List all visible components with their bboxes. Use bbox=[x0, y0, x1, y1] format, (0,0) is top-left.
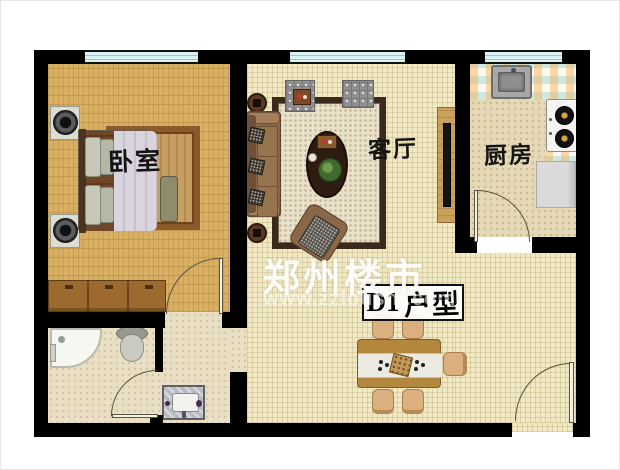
vanity-basin bbox=[172, 393, 199, 412]
bedroom-door-leaf bbox=[219, 258, 223, 314]
coffee-table-tray bbox=[317, 135, 337, 149]
wall-right bbox=[576, 50, 590, 437]
dining-chair bbox=[443, 352, 467, 376]
sofa-pillow bbox=[248, 189, 266, 207]
wall-bedroom-living bbox=[230, 50, 247, 328]
wall-hall-dining bbox=[230, 372, 247, 423]
coffee-table-dish bbox=[308, 153, 317, 162]
wardrobe bbox=[48, 280, 166, 312]
wall-bottom bbox=[573, 423, 590, 437]
entry-door-leaf bbox=[569, 362, 574, 423]
faucet-icon bbox=[511, 68, 516, 73]
wall-left bbox=[34, 50, 48, 437]
bathroom-vanity bbox=[162, 385, 205, 420]
wall-bedroom-bottom bbox=[222, 312, 247, 328]
wardrobe-handle bbox=[105, 285, 113, 289]
bedroom-label: 卧室 bbox=[107, 141, 162, 179]
shower-head-icon bbox=[58, 336, 65, 343]
stove bbox=[546, 99, 578, 152]
bedside-lamp-bottom bbox=[53, 218, 78, 243]
sofa-pillow bbox=[248, 127, 266, 145]
window-kitchen bbox=[485, 50, 562, 64]
floor-plan: 卧室 客厅 厨房 D1 户型 郑州楼市 www.zzloushi.com bbox=[0, 0, 620, 470]
bathroom-door-leaf bbox=[112, 414, 158, 418]
coffee-table-plant bbox=[318, 158, 342, 182]
side-table-bottom bbox=[247, 223, 267, 243]
sofa-pillow bbox=[248, 158, 266, 176]
dining-chair bbox=[372, 389, 394, 414]
wall-bathroom-stub bbox=[155, 326, 163, 372]
faucet-icon bbox=[182, 411, 186, 418]
bed-pillow bbox=[100, 187, 114, 223]
table-setting-dots bbox=[379, 360, 383, 364]
kitchen-sink bbox=[491, 65, 532, 99]
table-setting-dots bbox=[415, 360, 419, 364]
dining-chair bbox=[402, 389, 424, 414]
toilet bbox=[116, 326, 147, 362]
wall-bedroom-bottom bbox=[34, 312, 165, 328]
ottoman-2 bbox=[342, 80, 374, 108]
wall-kitchen-bottom bbox=[532, 237, 576, 253]
sofa bbox=[246, 111, 281, 217]
fridge bbox=[536, 161, 576, 208]
dining-table bbox=[357, 339, 441, 388]
bed-pillow bbox=[85, 185, 101, 225]
burner-icon bbox=[555, 129, 574, 148]
wall-kitchen-left bbox=[455, 50, 470, 253]
side-table-top bbox=[247, 93, 267, 113]
window-living bbox=[290, 50, 405, 64]
watermark-url: www.zzloushi.com bbox=[263, 288, 456, 311]
tv-screen bbox=[443, 123, 451, 207]
entry-door-sill bbox=[512, 423, 573, 432]
living-room-label: 客厅 bbox=[367, 129, 418, 165]
bed-pillow bbox=[85, 137, 101, 177]
window-bedroom bbox=[85, 50, 198, 64]
bed-bench bbox=[160, 176, 178, 222]
wall-bottom bbox=[34, 423, 512, 437]
wardrobe-handle bbox=[65, 285, 73, 289]
ottoman-1 bbox=[285, 80, 315, 112]
ottoman-tray bbox=[293, 89, 311, 105]
burner-icon bbox=[555, 106, 574, 125]
wardrobe-handle bbox=[145, 285, 153, 289]
kitchen-label: 厨房 bbox=[483, 135, 534, 171]
hall-passage-floor bbox=[230, 328, 247, 372]
bedside-lamp-top bbox=[53, 110, 78, 135]
kitchen-door-leaf bbox=[474, 190, 478, 242]
